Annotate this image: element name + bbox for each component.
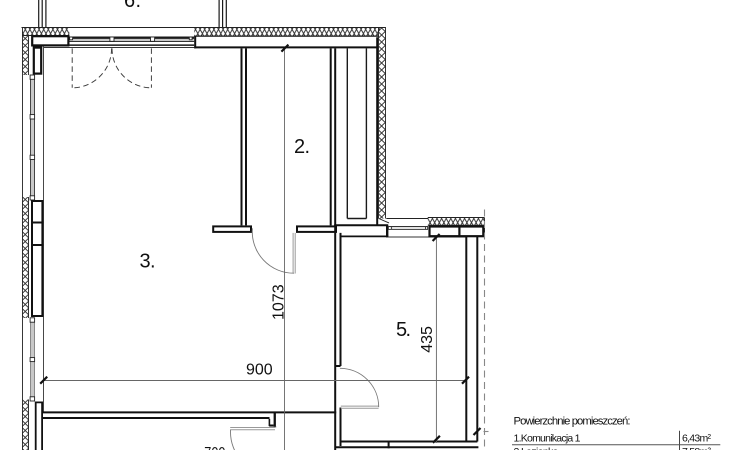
svg-text:5.: 5. — [396, 319, 411, 341]
svg-text:2.: 2. — [294, 136, 310, 158]
svg-text:6,43m²: 6,43m² — [682, 433, 712, 445]
svg-text:1073: 1073 — [270, 284, 287, 320]
svg-text:435: 435 — [419, 326, 436, 353]
svg-text:Powierzchnie pomieszczeń:: Powierzchnie pomieszczeń: — [514, 416, 631, 428]
svg-text:6.: 6. — [124, 0, 141, 12]
svg-text:7,58m²: 7,58m² — [682, 446, 712, 450]
svg-text:1.Komunikacja 1: 1.Komunikacja 1 — [514, 433, 581, 445]
svg-text:2.Łazienka: 2.Łazienka — [514, 446, 559, 450]
svg-text:900: 900 — [246, 362, 273, 379]
svg-text:3.: 3. — [140, 251, 156, 273]
svg-text:700: 700 — [204, 445, 225, 450]
